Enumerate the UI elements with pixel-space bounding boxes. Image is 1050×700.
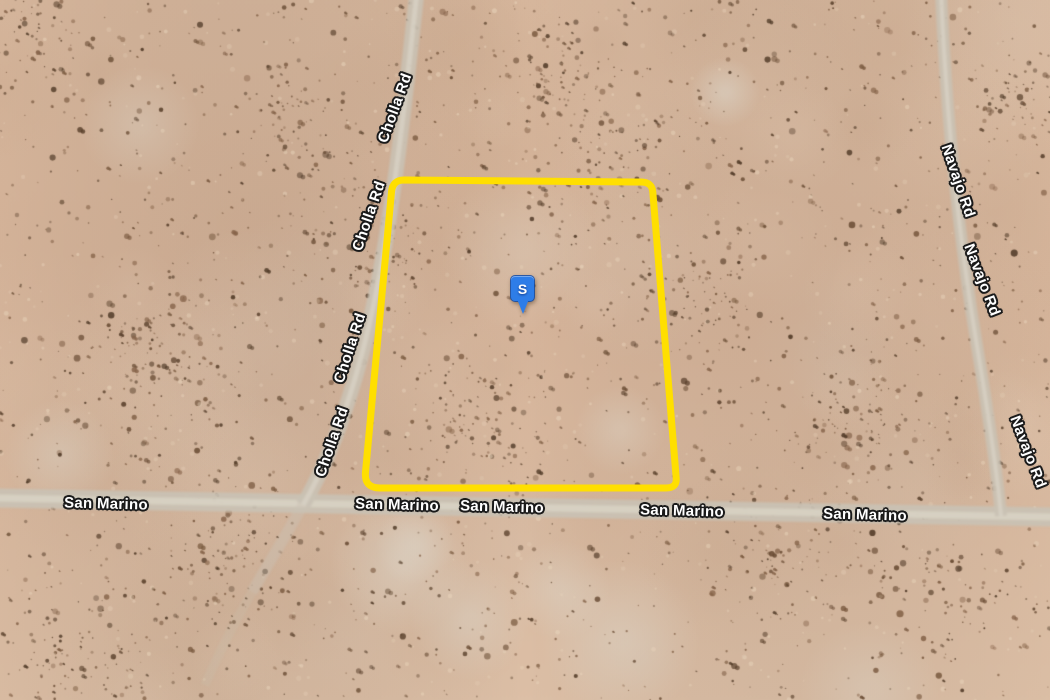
map-overlay bbox=[0, 0, 1050, 700]
road-cholla-center bbox=[303, 0, 417, 505]
road-cholla-continuation bbox=[252, 505, 303, 592]
marker-label: S bbox=[518, 282, 527, 296]
map-marker-pin[interactable]: S bbox=[511, 276, 535, 314]
road-cholla-continuation-faint bbox=[205, 592, 252, 685]
road-cholla bbox=[303, 0, 417, 505]
parcel-boundary bbox=[365, 180, 676, 488]
marker-tail-icon bbox=[517, 299, 529, 314]
roads-group bbox=[0, 0, 1050, 685]
marker-head: S bbox=[511, 276, 534, 301]
satellite-map-viewport[interactable]: Cholla RdCholla RdCholla RdCholla RdSan … bbox=[0, 0, 1050, 700]
